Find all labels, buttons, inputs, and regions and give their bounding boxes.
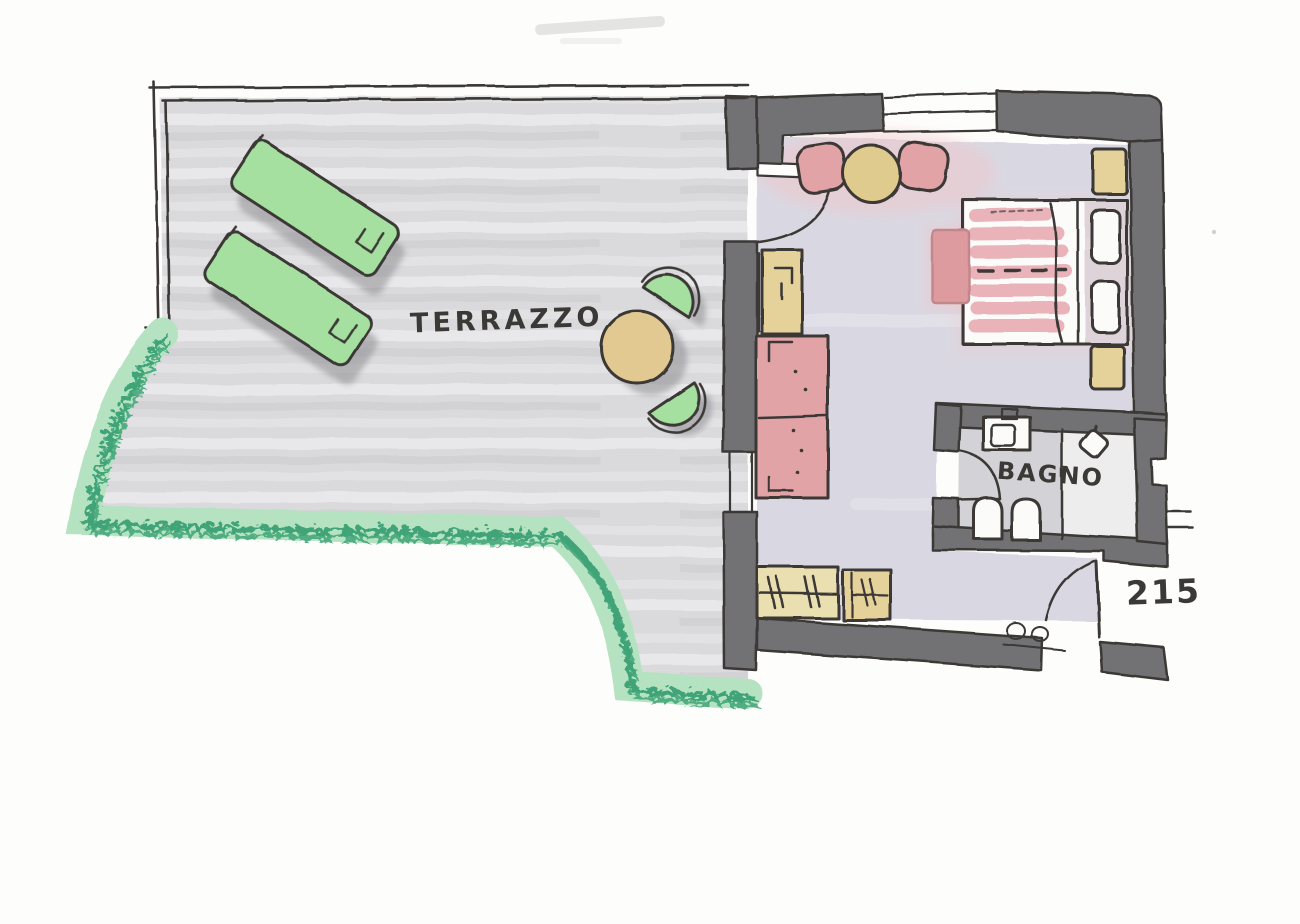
luggage-cabinet xyxy=(843,570,891,620)
floor-plan-sketch: TERRAZZO BAGNO 215 xyxy=(0,0,1300,924)
scanned-sketch-page: TERRAZZO BAGNO 215 xyxy=(0,0,1300,924)
nightstand-1 xyxy=(1093,150,1127,194)
armchair-right xyxy=(895,140,951,193)
wall-right xyxy=(1130,140,1166,420)
bidet xyxy=(1012,499,1040,540)
wall-terrace-divider-low xyxy=(723,512,757,670)
foot-bench xyxy=(932,230,969,303)
round-bistro-table xyxy=(601,311,673,383)
room-number-label: 215 xyxy=(1125,571,1201,613)
round-coffee-table xyxy=(844,146,900,202)
armchair-left xyxy=(795,142,850,196)
minibar-cabinet xyxy=(759,250,802,334)
wardrobe-with-hangers xyxy=(757,567,838,618)
sofa xyxy=(756,336,828,498)
wall-bath-left-upper xyxy=(934,404,961,452)
nightstand-2 xyxy=(1091,346,1124,389)
wall-terrace-divider-top xyxy=(726,96,757,169)
toilet xyxy=(974,498,1002,539)
pillow-2 xyxy=(1092,281,1119,332)
wall-top-right xyxy=(996,90,1162,142)
wall-terrace-divider-mid xyxy=(723,242,757,452)
pillow-1 xyxy=(1092,210,1120,263)
